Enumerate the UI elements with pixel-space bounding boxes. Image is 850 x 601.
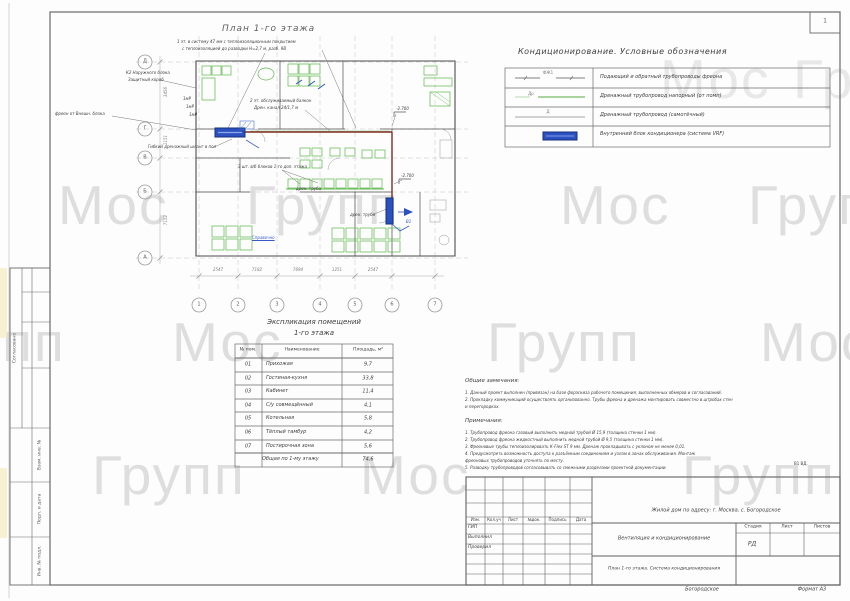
plan-annotation: 2 эт. обслуживаемый балкон [250, 99, 311, 103]
legend-row-description: Дренажный трубопровод (самотёчный) [600, 113, 705, 119]
grid-column-label: 6 [390, 302, 393, 308]
legend-symbol-label: ФЖ1 [543, 71, 553, 75]
grid-column-label: 2 [236, 302, 239, 308]
legend-title: Кондиционирование. Условные обозначения [518, 48, 727, 57]
room-name: Котельная [266, 416, 294, 422]
title-block-column: Кол.уч [487, 518, 501, 522]
side-stamp-label: Согласовано [14, 333, 19, 363]
room-name: Гостиная-кухня [266, 376, 307, 382]
notes-general-title: Общие замечания: [465, 378, 519, 384]
notes-line: фреоновых трубопроводов уточнять по мест… [465, 459, 564, 463]
room-name: Кабинет [266, 389, 288, 395]
room-number: 01 [245, 362, 251, 368]
notes-line: 1. Трубопровод фреона газовый выполнить … [465, 431, 657, 435]
notes-line: 1. Данный проект выполнен (привязан) на … [465, 391, 722, 395]
title-block-column: Изм. [471, 518, 480, 522]
explication-total-area: 74,6 [362, 457, 373, 463]
legend-symbol-label: Др [528, 92, 534, 96]
grid-row-label: Б [143, 189, 146, 195]
dimension-value: 7694 [293, 268, 303, 272]
room-number: 06 [245, 430, 251, 436]
title-block-role: ГИП [468, 526, 477, 531]
plan-annotation: дрен. труба [350, 213, 375, 217]
room-number: 04 [245, 403, 251, 409]
dimension-value: 1251 [332, 268, 342, 272]
plan-annotation: К2 Наружного блока [126, 71, 170, 75]
room-name: Постирочная зона [266, 444, 314, 450]
dimension-value: 7152 [164, 215, 168, 225]
notes-line: 2. Трубопровод фреона жидкостный выполни… [465, 438, 664, 442]
side-stamp-boxes [10, 268, 50, 585]
explication-title: Экспликация помещений [267, 319, 361, 327]
notes-side-mark: В1 ВД. [794, 462, 808, 466]
explication-title: 1-го этажа [294, 330, 334, 338]
side-stamp-label: Взам. инв. № [39, 440, 44, 471]
legend-row-description: Внутренний блок кондиционера (система VR… [600, 132, 724, 138]
elevation-tag: -2.700 [401, 174, 414, 178]
ac-units [215, 80, 413, 231]
explication-header: Наименование [285, 349, 320, 354]
room-area: 11,4 [362, 389, 373, 395]
floor-plan [112, 36, 468, 312]
explication-header: № пом. [240, 349, 257, 354]
room-number: 03 [245, 389, 251, 395]
grid-column-label: 7 [433, 302, 436, 308]
fixtures [430, 140, 452, 245]
format-note: Формат А3 [798, 587, 826, 593]
room-area: 9,7 [364, 362, 372, 368]
room-number: 02 [245, 376, 251, 382]
grid-column-label: 4 [318, 302, 321, 308]
room-name: С/у совмещённый [266, 403, 313, 409]
explication-total-label: Общая по 1-му этажу [262, 457, 319, 463]
notes-line: 4. Предусмотреть возможность доступа к р… [465, 452, 695, 456]
grid-row-label: В [143, 155, 146, 161]
sheet-corner-mark: 1 [823, 19, 827, 26]
blueprint-scan: Мос Групп Мос Групп Мос Групп Групп Мос … [0, 0, 850, 601]
title-block-sheet-name: План 1-го этажа. Система кондиционирован… [608, 568, 720, 573]
title-block-section: Вентиляция и кондиционирование [618, 536, 710, 542]
title-block-role: Проверил [468, 546, 491, 551]
title-block-column: Дата [576, 518, 586, 522]
plan-annotation: Дрен. канал 24/1,7 м [254, 106, 298, 110]
stage-header: Листов [814, 526, 831, 531]
plan-annotation: Гибкий дренажный шланг в пол [148, 145, 216, 149]
plan-annotation: 3 шт. в/б блоков 1-го доп. этажа [238, 165, 307, 169]
room-area: 33,8 [362, 376, 373, 382]
location-note: Богородское [685, 587, 719, 593]
room-area: 5,8 [364, 416, 372, 422]
room-number: 07 [245, 444, 251, 450]
plan-annotation: Защитный короб [128, 78, 164, 82]
plan-title: План 1-го этажа [222, 25, 315, 35]
elevation-tag: -2.700 [396, 107, 409, 111]
plan-annotation: с теплоизоляцией до разводки Н=2,7 м, ра… [182, 47, 286, 51]
title-block-project: Жилой дом по адресу: г. Москва, с. Богор… [651, 508, 780, 514]
title-block-column: Подпись [549, 518, 567, 522]
plan-annotation: 1мР [189, 113, 197, 117]
plan-annotation: 1мР [186, 105, 194, 109]
side-stamp-label: Подп. и дата [39, 494, 44, 525]
room-area: 5,6 [364, 444, 372, 450]
grid-row-label: Д [143, 59, 147, 65]
legend-row-description: Подающий и обратный трубопроводы фреона [600, 75, 722, 81]
dimension-value: 2547 [368, 268, 378, 272]
grid-column-label: 5 [353, 302, 356, 308]
stage-value: РД [748, 542, 756, 549]
grid-row-label: А [143, 255, 146, 261]
dimension-value: 7182 [252, 268, 262, 272]
side-stamp-label: Инв. № подл. [39, 545, 44, 576]
notes-line: 5. Разводку трубопроводов согласовывать … [465, 466, 667, 470]
room-area: 4,2 [364, 430, 372, 436]
stage-header: Стадия [744, 526, 761, 531]
plan-annotation: 1мР [183, 97, 191, 101]
room-number: 05 [245, 416, 251, 422]
plan-annotation: Справочно [252, 236, 275, 240]
notes-title: Примечания: [465, 418, 503, 424]
room-area: 4,1 [364, 403, 372, 409]
plan-annotation: фреон от Внешн. блока [55, 112, 105, 116]
explication-header: Площадь, м² [353, 349, 383, 354]
legend-row-description: Дренажный трубопровод напорный (от помп) [600, 94, 722, 100]
notes-line: и перегородках. [465, 405, 500, 409]
plan-annotation: дрен. труба [296, 187, 321, 191]
grid-column-label: 1 [197, 302, 200, 308]
stage-header: Лист [781, 526, 792, 531]
notes-line: 2. Прокладку коммуникаций осуществлять о… [465, 398, 733, 402]
dimension-value: 2547 [213, 268, 223, 272]
title-block-column: №док. [527, 518, 540, 522]
title-block-column: Лист [508, 518, 518, 522]
room-name: Тёплый тамбур [266, 430, 306, 436]
title-block-role: Выполнил [468, 536, 492, 541]
plan-annotation: В1 [406, 220, 411, 224]
notes-line: 3. Фреоновые трубы теплоизолировать К-Fl… [465, 445, 686, 449]
grid-row-label: Г [143, 126, 146, 132]
plan-annotation: 1 эт. в систему 47 мм с теплоизоляционны… [177, 40, 296, 44]
grid-column-label: 3 [275, 302, 278, 308]
legend-symbol-label: Д [546, 110, 549, 114]
room-name: Прихожая [266, 362, 293, 368]
dimension-value: 3456 [164, 87, 168, 97]
